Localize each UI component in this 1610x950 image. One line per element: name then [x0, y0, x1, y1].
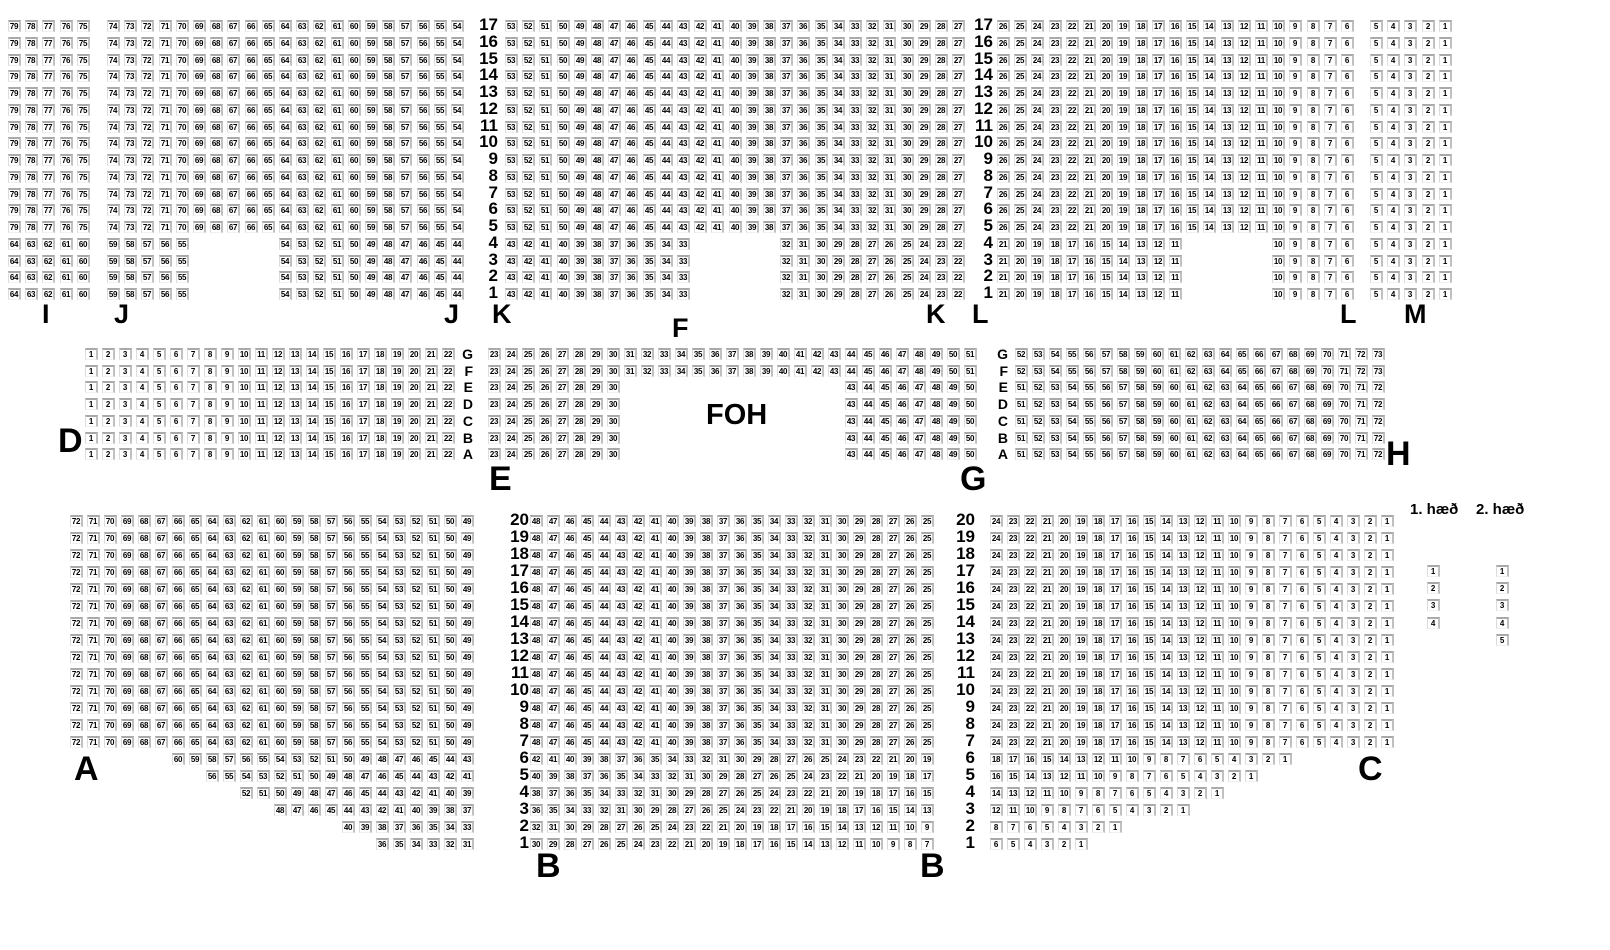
seat-A[interactable]: 42 [376, 804, 389, 816]
seat-K[interactable]: 45 [643, 221, 656, 233]
seat-A[interactable]: 70 [104, 668, 117, 680]
seat-A[interactable]: 49 [461, 583, 474, 595]
seat-J[interactable]: 69 [193, 54, 206, 66]
seat-K[interactable]: 34 [832, 121, 845, 133]
seat-J[interactable]: 55 [434, 171, 447, 183]
seat-E[interactable]: 41 [794, 348, 807, 360]
seat-J[interactable]: 69 [193, 121, 206, 133]
seat-M[interactable]: 4 [1387, 271, 1400, 283]
seat-I[interactable]: 77 [42, 137, 55, 149]
seat-C[interactable]: 11 [1211, 651, 1224, 663]
seat-C[interactable]: 2 [1058, 838, 1071, 850]
seat-H[interactable]: 62 [1202, 448, 1215, 460]
seat-H[interactable]: 51 [1015, 381, 1028, 393]
seat-J[interactable]: 59 [365, 70, 378, 82]
seat-J[interactable]: 74 [107, 121, 120, 133]
seat-J[interactable]: 58 [382, 20, 395, 32]
seat-B[interactable]: 20 [734, 821, 747, 833]
seat-H[interactable]: 63 [1219, 415, 1232, 427]
seat-M[interactable]: 3 [1404, 238, 1417, 250]
seat-A[interactable]: 43 [461, 753, 474, 765]
seat-B[interactable]: 28 [870, 702, 883, 714]
seat-A[interactable]: 59 [291, 719, 304, 731]
seat-K[interactable]: 49 [574, 121, 587, 133]
seat-A[interactable]: 61 [257, 566, 270, 578]
seat-L[interactable]: 9 [1289, 271, 1302, 283]
seat-A[interactable]: 71 [87, 617, 100, 629]
seat-C[interactable]: 5 [1313, 668, 1326, 680]
seat-B[interactable]: 20 [802, 804, 815, 816]
seat-A[interactable]: 70 [104, 617, 117, 629]
seat-A[interactable]: 55 [359, 549, 372, 561]
seat-K[interactable]: 27 [952, 154, 965, 166]
seat-A[interactable]: 51 [427, 685, 440, 697]
seat-E[interactable]: 45 [879, 448, 892, 460]
seat-C[interactable]: 17 [1109, 583, 1122, 595]
seat-E[interactable]: 49 [930, 365, 943, 377]
seat-B[interactable]: 35 [751, 685, 764, 697]
seat-J[interactable]: 62 [313, 20, 326, 32]
seat-L[interactable]: 10 [1272, 87, 1285, 99]
seat-J[interactable]: 57 [141, 255, 154, 267]
seat-J[interactable]: 73 [124, 104, 137, 116]
seat-K[interactable]: 39 [746, 204, 759, 216]
seat-J[interactable]: 57 [399, 221, 412, 233]
seat-L[interactable]: 9 [1289, 37, 1302, 49]
seat-L[interactable]: 10 [1272, 204, 1285, 216]
seat-J[interactable]: 51 [331, 271, 344, 283]
seat-C[interactable]: 10 [1228, 583, 1241, 595]
seat-M[interactable]: 2 [1422, 37, 1435, 49]
seat-B[interactable]: 46 [564, 549, 577, 561]
seat-B[interactable]: 44 [598, 651, 611, 663]
seat-C[interactable]: 7 [1143, 770, 1156, 782]
seat-C[interactable]: 20 [1058, 566, 1071, 578]
seat-J[interactable]: 57 [399, 20, 412, 32]
seat-E[interactable]: 48 [930, 381, 943, 393]
seat-L[interactable]: 25 [1014, 137, 1027, 149]
seat-B[interactable]: 41 [649, 566, 662, 578]
seat-J[interactable]: 73 [124, 154, 137, 166]
seat-L[interactable]: 18 [1135, 70, 1148, 82]
seat-B[interactable]: 33 [785, 685, 798, 697]
seat-A[interactable]: 51 [325, 753, 338, 765]
seat-B[interactable]: 25 [921, 736, 934, 748]
seat-K[interactable]: 31 [797, 238, 810, 250]
seat-M[interactable]: 3 [1404, 87, 1417, 99]
seat-A[interactable]: 51 [427, 600, 440, 612]
seat-A[interactable]: 55 [359, 532, 372, 544]
seat-K[interactable]: 42 [694, 154, 707, 166]
seat-K[interactable]: 22 [952, 238, 965, 250]
seat-M[interactable]: 4 [1387, 238, 1400, 250]
seat-L[interactable]: 6 [1341, 154, 1354, 166]
seat-A[interactable]: 65 [189, 685, 202, 697]
seat-A[interactable]: 71 [87, 532, 100, 544]
seat-B[interactable]: 35 [751, 549, 764, 561]
seat-I[interactable]: 75 [77, 188, 90, 200]
seat-A[interactable]: 66 [172, 719, 185, 731]
seat-K[interactable]: 37 [780, 221, 793, 233]
seat-B[interactable]: 34 [768, 685, 781, 697]
seat-B[interactable]: 27 [751, 770, 764, 782]
seat-E[interactable]: 29 [590, 432, 603, 444]
seat-H[interactable]: 65 [1236, 348, 1249, 360]
seat-C[interactable]: 19 [1075, 515, 1088, 527]
seat-K[interactable]: 43 [677, 204, 690, 216]
seat-C[interactable]: 24 [990, 651, 1003, 663]
seat-K[interactable]: 53 [505, 20, 518, 32]
seat-L[interactable]: 25 [1014, 221, 1027, 233]
seat-A[interactable]: 57 [325, 532, 338, 544]
seat-K[interactable]: 46 [625, 104, 638, 116]
seat-K[interactable]: 28 [935, 188, 948, 200]
seat-H[interactable]: 65 [1253, 432, 1266, 444]
seat-D[interactable]: 12 [272, 398, 285, 410]
seat-I[interactable]: 77 [42, 171, 55, 183]
seat-K[interactable]: 34 [832, 188, 845, 200]
seat-K[interactable]: 50 [557, 221, 570, 233]
seat-A[interactable]: 55 [359, 583, 372, 595]
seat-A[interactable]: 52 [410, 549, 423, 561]
seat-K[interactable]: 46 [625, 70, 638, 82]
seat-J[interactable]: 69 [193, 221, 206, 233]
seat-J[interactable]: 58 [382, 87, 395, 99]
seat-L[interactable]: 12 [1238, 154, 1251, 166]
seat-B[interactable]: 47 [547, 515, 560, 527]
seat-E[interactable]: 46 [879, 365, 892, 377]
seat-D[interactable]: 10 [238, 381, 251, 393]
seat-A[interactable]: 51 [427, 719, 440, 731]
seat-M[interactable]: 2 [1422, 188, 1435, 200]
seat-E[interactable]: 45 [879, 432, 892, 444]
seat-L[interactable]: 19 [1117, 87, 1130, 99]
seat-A[interactable]: 52 [410, 600, 423, 612]
seat-H[interactable]: 69 [1321, 381, 1334, 393]
seat-D[interactable]: 3 [119, 415, 132, 427]
seat-K[interactable]: 36 [797, 204, 810, 216]
seat-C[interactable]: 16 [990, 770, 1003, 782]
seat-K[interactable]: 42 [522, 271, 535, 283]
seat-A[interactable]: 46 [308, 804, 321, 816]
seat-A[interactable]: 45 [393, 770, 406, 782]
seat-L[interactable]: 23 [1049, 121, 1062, 133]
seat-C[interactable]: 13 [1177, 702, 1190, 714]
seat-A[interactable]: 50 [444, 566, 457, 578]
seat-B[interactable]: 25 [921, 583, 934, 595]
seat-A[interactable]: 31 [461, 838, 474, 850]
seat-D[interactable]: 14 [306, 432, 319, 444]
seat-K[interactable]: 42 [694, 20, 707, 32]
seat-J[interactable]: 63 [296, 87, 309, 99]
seat-L[interactable]: 10 [1272, 20, 1285, 32]
seat-J[interactable]: 61 [331, 104, 344, 116]
seat-K[interactable]: 37 [780, 188, 793, 200]
seat-I[interactable]: 77 [42, 20, 55, 32]
seat-D[interactable]: 11 [255, 381, 268, 393]
seat-B[interactable]: 36 [734, 583, 747, 595]
seat-J[interactable]: 56 [417, 188, 430, 200]
seat-C[interactable]: 8 [1262, 600, 1275, 612]
seat-L[interactable]: 21 [1083, 54, 1096, 66]
seat-H[interactable]: 72 [1372, 432, 1385, 444]
seat-A[interactable]: 56 [342, 685, 355, 697]
seat-L[interactable]: 16 [1169, 188, 1182, 200]
seat-K[interactable]: 41 [711, 154, 724, 166]
seat-C[interactable]: 13 [1177, 532, 1190, 544]
seat-D[interactable]: 17 [357, 348, 370, 360]
seat-M[interactable]: 2 [1422, 137, 1435, 149]
seat-K[interactable]: 51 [539, 104, 552, 116]
seat-E[interactable]: 40 [777, 365, 790, 377]
seat-J[interactable]: 70 [176, 171, 189, 183]
seat-B[interactable]: 30 [666, 787, 679, 799]
seat-C[interactable]: 22 [1024, 702, 1037, 714]
seat-B[interactable]: 33 [785, 600, 798, 612]
seat-E[interactable]: 50 [964, 415, 977, 427]
seat-D[interactable]: 14 [306, 381, 319, 393]
seat-B[interactable]: 26 [904, 532, 917, 544]
seat-K[interactable]: 52 [522, 70, 535, 82]
seat-A[interactable]: 65 [189, 600, 202, 612]
seat-M[interactable]: 2 [1422, 104, 1435, 116]
seat-E[interactable]: 35 [692, 365, 705, 377]
seat-C[interactable]: 5 [1109, 804, 1122, 816]
seat-C[interactable]: 7 [1279, 515, 1292, 527]
seat-B[interactable]: 29 [853, 583, 866, 595]
seat-E[interactable]: 25 [522, 381, 535, 393]
seat-L[interactable]: 17 [1152, 221, 1165, 233]
seat-B[interactable]: 34 [768, 617, 781, 629]
seat-J[interactable]: 54 [451, 121, 464, 133]
seat-A[interactable]: 49 [461, 532, 474, 544]
seat-D[interactable]: 5 [153, 348, 166, 360]
seat-J[interactable]: 54 [279, 255, 292, 267]
seat-K[interactable]: 29 [918, 87, 931, 99]
seat-L[interactable]: 25 [1014, 104, 1027, 116]
seat-B[interactable]: 29 [853, 736, 866, 748]
seat-H[interactable]: 72 [1372, 398, 1385, 410]
seat-K[interactable]: 28 [935, 154, 948, 166]
seat-C[interactable]: 4 [1058, 821, 1071, 833]
seat-A[interactable]: 49 [461, 651, 474, 663]
seat-A[interactable]: 44 [376, 787, 389, 799]
seat-C[interactable]: 7 [1279, 634, 1292, 646]
seat-A[interactable]: 59 [291, 736, 304, 748]
seat-M[interactable]: 5 [1370, 171, 1383, 183]
seat-L[interactable]: 17 [1152, 104, 1165, 116]
seat-K[interactable]: 36 [797, 171, 810, 183]
seat-J[interactable]: 59 [107, 238, 120, 250]
seat-K[interactable]: 47 [608, 171, 621, 183]
seat-K[interactable]: 33 [677, 238, 690, 250]
seat-C[interactable]: 23 [1007, 566, 1020, 578]
seat-C[interactable]: 16 [1126, 736, 1139, 748]
seat-J[interactable]: 44 [451, 271, 464, 283]
seat-C[interactable]: 4 [1160, 787, 1173, 799]
seat-C[interactable]: 2 [1364, 532, 1377, 544]
seat-A[interactable]: 49 [461, 668, 474, 680]
seat-C[interactable]: 3 [1347, 515, 1360, 527]
seat-E[interactable]: 47 [896, 365, 909, 377]
seat-C[interactable]: 11 [1211, 634, 1224, 646]
seat-D[interactable]: 11 [255, 398, 268, 410]
seat-K[interactable]: 41 [711, 70, 724, 82]
seat-B[interactable]: 47 [547, 702, 560, 714]
seat-C[interactable]: 14 [1160, 634, 1173, 646]
seat-J[interactable]: 61 [331, 221, 344, 233]
seat-D[interactable]: 9 [221, 415, 234, 427]
seat-L[interactable]: 19 [1117, 154, 1130, 166]
seat-A[interactable]: 54 [376, 651, 389, 663]
seat-B[interactable]: 17 [853, 804, 866, 816]
seat-L[interactable]: 8 [1307, 20, 1320, 32]
seat-C[interactable]: 3 [1347, 702, 1360, 714]
seat-K[interactable]: 49 [574, 104, 587, 116]
seat-B[interactable]: 35 [751, 668, 764, 680]
seat-E[interactable]: 43 [845, 398, 858, 410]
seat-I[interactable]: 77 [42, 188, 55, 200]
seat-H[interactable]: 63 [1219, 448, 1232, 460]
seat-J[interactable]: 62 [313, 87, 326, 99]
seat-K[interactable]: 53 [505, 188, 518, 200]
seat-A[interactable]: 55 [359, 617, 372, 629]
seat-B[interactable]: 32 [802, 719, 815, 731]
seat-B[interactable]: 44 [598, 617, 611, 629]
seat-I[interactable]: 77 [42, 70, 55, 82]
seat-K[interactable]: 33 [849, 204, 862, 216]
seat-K[interactable]: 32 [866, 37, 879, 49]
seat-K[interactable]: 37 [608, 238, 621, 250]
seat-B[interactable]: 38 [700, 532, 713, 544]
seat-C[interactable]: 21 [1041, 702, 1054, 714]
seat-J[interactable]: 66 [245, 54, 258, 66]
seat-D[interactable]: 6 [170, 432, 183, 444]
seat-H[interactable]: 51 [1015, 398, 1028, 410]
seat-I[interactable]: 60 [77, 271, 90, 283]
seat-A[interactable]: 59 [291, 532, 304, 544]
seat-B[interactable]: 45 [581, 532, 594, 544]
seat-M[interactable]: 4 [1387, 221, 1400, 233]
seat-B[interactable]: 29 [853, 668, 866, 680]
seat-K[interactable]: 30 [901, 104, 914, 116]
seat-B[interactable]: 25 [615, 838, 628, 850]
seat-K[interactable]: 25 [901, 271, 914, 283]
seat-H[interactable]: 71 [1355, 398, 1368, 410]
seat-C[interactable]: 8 [1058, 804, 1071, 816]
seat-J[interactable]: 54 [451, 70, 464, 82]
seat-E[interactable]: 46 [896, 398, 909, 410]
seat-L[interactable]: 6 [1341, 54, 1354, 66]
seat-A[interactable]: 54 [376, 719, 389, 731]
seat-I[interactable]: 78 [25, 37, 38, 49]
seat-B[interactable]: 36 [734, 736, 747, 748]
seat-A[interactable]: 57 [325, 634, 338, 646]
seat-H[interactable]: 71 [1338, 348, 1351, 360]
seat-C[interactable]: 9 [1245, 583, 1258, 595]
seat-H[interactable]: 68 [1287, 348, 1300, 360]
seat-B[interactable]: 24 [768, 787, 781, 799]
seat-D[interactable]: 12 [272, 381, 285, 393]
seat-B[interactable]: 18 [734, 838, 747, 850]
seat-C[interactable]: 5 [1313, 549, 1326, 561]
seat-C[interactable]: 1 [1381, 566, 1394, 578]
seat-B[interactable]: 38 [700, 617, 713, 629]
seat-C[interactable]: 13 [1177, 651, 1190, 663]
seat-L[interactable]: 17 [1066, 288, 1079, 300]
seat-A[interactable]: 48 [342, 770, 355, 782]
seat-A[interactable]: 50 [444, 702, 457, 714]
seat-L[interactable]: 16 [1169, 20, 1182, 32]
seat-K[interactable]: 32 [866, 54, 879, 66]
seat-K[interactable]: 34 [832, 104, 845, 116]
seat-B[interactable]: 25 [921, 702, 934, 714]
seat-C[interactable]: 13 [1177, 736, 1190, 748]
seat-L[interactable]: 13 [1135, 255, 1148, 267]
seat-C[interactable]: 8 [1262, 685, 1275, 697]
seat-J[interactable]: 58 [382, 171, 395, 183]
seat-J[interactable]: 46 [417, 255, 430, 267]
seat-H[interactable]: 60 [1168, 448, 1181, 460]
seat-J[interactable]: 74 [107, 188, 120, 200]
seat-B[interactable]: 31 [819, 719, 832, 731]
seat-K[interactable]: 29 [918, 121, 931, 133]
seat-L[interactable]: 25 [1014, 70, 1027, 82]
seat-L[interactable]: 20 [1014, 271, 1027, 283]
seat-H[interactable]: 60 [1168, 398, 1181, 410]
seat-E[interactable]: 37 [726, 348, 739, 360]
seat-A[interactable]: 57 [325, 736, 338, 748]
seat-A[interactable]: 66 [172, 702, 185, 714]
seat-K[interactable]: 36 [797, 154, 810, 166]
seat-C[interactable]: 4 [1330, 651, 1343, 663]
seat-L[interactable]: 25 [1014, 37, 1027, 49]
seat-C[interactable]: 4 [1330, 668, 1343, 680]
seat-J[interactable]: 59 [365, 37, 378, 49]
seat-A[interactable]: 61 [257, 719, 270, 731]
seat-B[interactable]: 38 [700, 736, 713, 748]
seat-K[interactable]: 48 [591, 154, 604, 166]
seat-I[interactable]: 75 [77, 104, 90, 116]
seat-B[interactable]: 42 [632, 515, 645, 527]
seat-A[interactable]: 72 [70, 566, 83, 578]
seat-D[interactable]: 8 [204, 348, 217, 360]
seat-B[interactable]: 25 [921, 532, 934, 544]
seat-C[interactable]: 7 [1279, 651, 1292, 663]
seat-A[interactable]: 62 [240, 651, 253, 663]
seat-K[interactable]: 42 [694, 70, 707, 82]
seat-L[interactable]: 24 [1031, 154, 1044, 166]
seat-B[interactable]: 18 [904, 770, 917, 782]
seat-B[interactable]: 37 [717, 549, 730, 561]
seat-L[interactable]: 22 [1066, 188, 1079, 200]
seat-M[interactable]: 2 [1422, 154, 1435, 166]
seat-D[interactable]: 5 [153, 415, 166, 427]
seat-E[interactable]: 48 [930, 398, 943, 410]
seat-L[interactable]: 23 [1049, 137, 1062, 149]
seat-D[interactable]: 1 [85, 448, 98, 460]
seat-L[interactable]: 19 [1117, 221, 1130, 233]
seat-K[interactable]: 30 [815, 271, 828, 283]
seat-C[interactable]: 8 [1092, 787, 1105, 799]
seat-K[interactable]: 44 [660, 70, 673, 82]
seat-J[interactable]: 65 [262, 171, 275, 183]
seat-A[interactable]: 60 [274, 583, 287, 595]
seat-K[interactable]: 22 [952, 288, 965, 300]
seat-A[interactable]: 69 [121, 719, 134, 731]
seat-D[interactable]: 14 [306, 398, 319, 410]
seat-K[interactable]: 45 [643, 137, 656, 149]
